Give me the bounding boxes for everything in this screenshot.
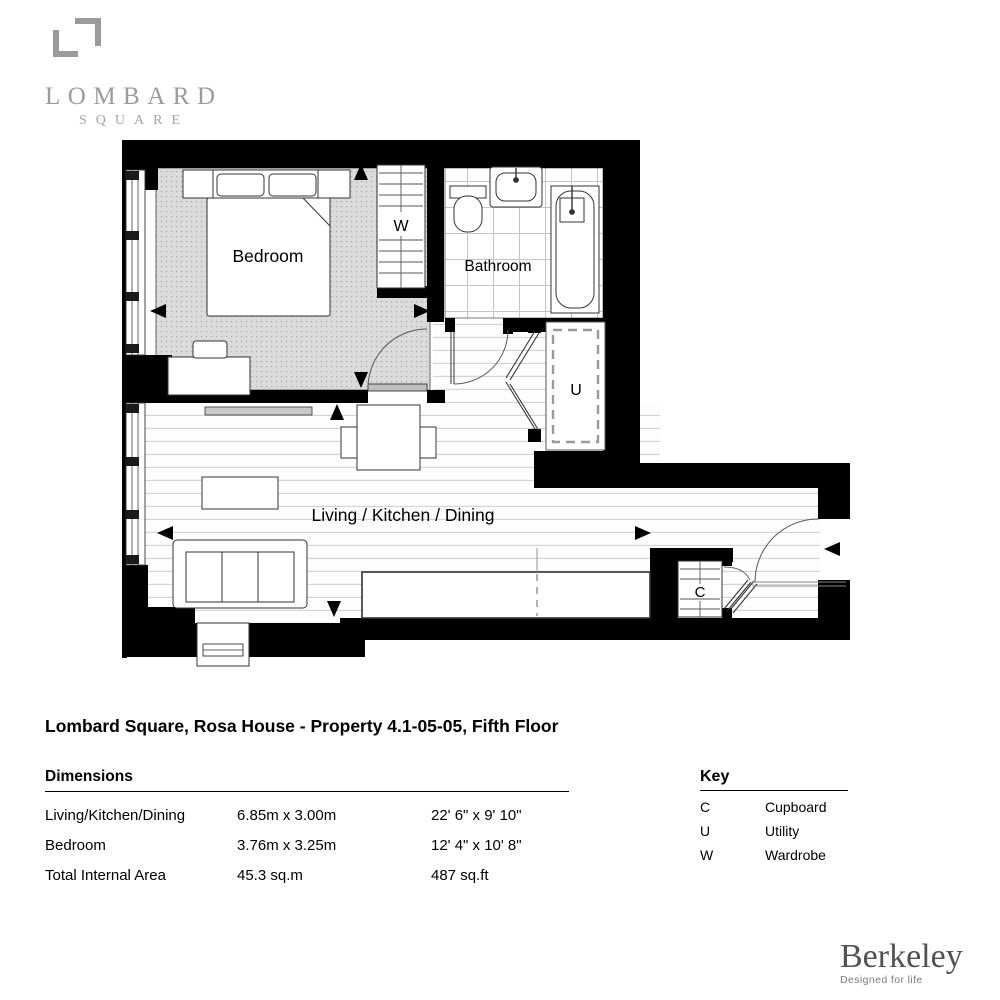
wall-hall-top [534, 463, 850, 488]
dining-chair-left [341, 427, 358, 458]
wall-wardrobe [427, 140, 444, 322]
coffee-table [202, 477, 278, 509]
arrow-entrance [824, 542, 840, 556]
cupboard-label: C [695, 584, 706, 601]
dim-label: Bedroom [45, 837, 237, 854]
wall-shelf [205, 407, 312, 415]
sofa [173, 540, 307, 608]
wall-corner-bl [122, 607, 195, 657]
key-symbol: U [700, 823, 765, 839]
desk [168, 357, 250, 395]
dim-label: Living/Kitchen/Dining [45, 807, 237, 824]
balcony-window [197, 623, 249, 666]
dimensions-table: Dimensions Living/Kitchen/Dining 6.85m x… [45, 768, 569, 884]
bathtub [551, 186, 599, 313]
key-label: Cupboard [765, 799, 848, 815]
dim-metric: 3.76m x 3.25m [237, 837, 431, 854]
key-row: C Cupboard [700, 795, 848, 819]
property-title: Lombard Square, Rosa House - Property 4.… [45, 716, 558, 737]
wall-right-upper [818, 488, 850, 519]
key-label: Utility [765, 823, 848, 839]
key-symbol: C [700, 799, 765, 815]
living-window [126, 403, 145, 565]
key-table: Key C Cupboard U Utility W Wardrobe [700, 768, 848, 867]
dim-metric: 45.3 sq.m [237, 867, 431, 884]
key-heading: Key [700, 768, 848, 790]
table-row: Living/Kitchen/Dining 6.85m x 3.00m 22' … [45, 794, 569, 824]
wall-right-lower [818, 580, 850, 640]
dim-label: Total Internal Area [45, 867, 237, 884]
developer-name: Berkeley [840, 938, 990, 976]
berkeley-logo: Berkeley Designed for life [840, 938, 990, 986]
table-row: Total Internal Area 45.3 sq.m 487 sq.ft [45, 854, 569, 884]
dim-imperial: 487 sq.ft [431, 867, 569, 884]
dining-table [357, 405, 420, 470]
bedroom-label: Bedroom [232, 246, 303, 266]
floorplan-page: LOMBARD SQUARE [0, 0, 1000, 1000]
table-row: Bedroom 3.76m x 3.25m 12' 4" x 10' 8" [45, 824, 569, 854]
key-row: W Wardrobe [700, 843, 848, 867]
bathroom-label: Bathroom [464, 258, 531, 275]
utility-label: U [570, 382, 582, 399]
living-label: Living / Kitchen / Dining [312, 505, 495, 525]
key-symbol: W [700, 847, 765, 863]
wardrobe-label: W [393, 218, 409, 235]
dim-imperial: 22' 6" x 9' 10" [431, 807, 569, 824]
basin [490, 167, 542, 207]
wall-bath-right [603, 140, 640, 470]
dimensions-heading: Dimensions [45, 768, 569, 791]
desk-chair [193, 341, 227, 358]
wall-cupboard-left [650, 553, 678, 640]
pillow-left [217, 174, 264, 196]
key-label: Wardrobe [765, 847, 848, 863]
dim-imperial: 12' 4" x 10' 8" [431, 837, 569, 854]
headboard-shelf [183, 170, 350, 198]
floor-plan: Bedroom Bathroom Living / Kitchen / Dini… [0, 0, 1000, 700]
wall-bottom-right [340, 618, 850, 640]
bedroom-window [126, 170, 145, 355]
wall-bath-jamb [445, 318, 455, 332]
shower-head [570, 210, 575, 215]
developer-tagline: Designed for life [840, 974, 990, 986]
dimensions-rule [45, 791, 569, 792]
dim-metric: 6.85m x 3.00m [237, 807, 431, 824]
wall-divider-jamb [427, 390, 445, 403]
key-row: U Utility [700, 819, 848, 843]
key-rule [700, 790, 848, 791]
pillow-right [269, 174, 316, 196]
toilet [450, 186, 486, 232]
dining-chair-right [419, 427, 436, 458]
door-stop-c-top [722, 554, 732, 566]
wall-top [122, 140, 637, 168]
